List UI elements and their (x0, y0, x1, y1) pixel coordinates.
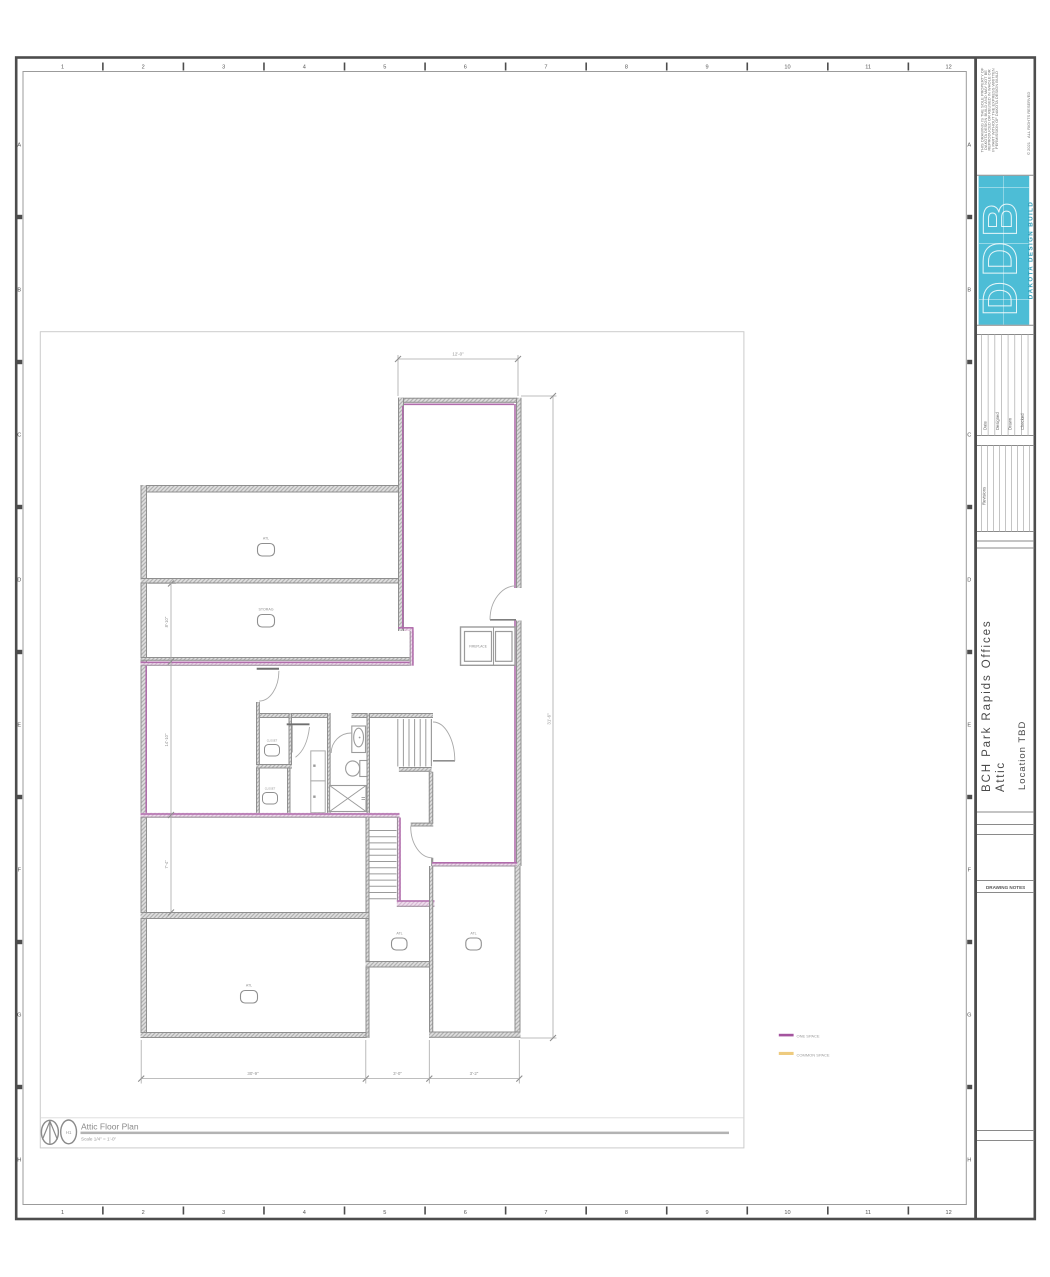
svg-text:B: B (17, 288, 21, 294)
svg-text:12: 12 (946, 1210, 952, 1216)
svg-text:1: 1 (61, 64, 64, 70)
svg-text:FIREPLACE: FIREPLACE (469, 645, 487, 649)
svg-text:2: 2 (142, 64, 145, 70)
svg-text:ATL: ATL (246, 984, 252, 988)
svg-text:© 2021: © 2021 (1026, 141, 1031, 155)
svg-text:1: 1 (61, 1210, 64, 1216)
svg-text:12'-0": 12'-0" (452, 352, 464, 357)
svg-text:31'-6": 31'-6" (547, 713, 552, 725)
svg-text:ATL: ATL (396, 932, 402, 936)
svg-text:5: 5 (383, 64, 386, 70)
svg-text:G: G (967, 1013, 971, 1019)
svg-text:H: H (967, 1158, 971, 1164)
svg-text:A: A (17, 143, 21, 149)
svg-text:F: F (968, 868, 972, 874)
svg-text:10: 10 (784, 1210, 790, 1216)
svg-text:PERMISSION OF DAKOTA DESIGN BU: PERMISSION OF DAKOTA DESIGN BUILD (994, 71, 999, 149)
svg-text:2: 2 (142, 1210, 145, 1216)
svg-text:COMMON SPACE: COMMON SPACE (797, 1052, 830, 1057)
svg-text:F: F (18, 868, 22, 874)
svg-text:7: 7 (544, 1210, 547, 1216)
svg-text:3'-2": 3'-2" (470, 1071, 479, 1076)
svg-text:Location TBD: Location TBD (1017, 721, 1028, 790)
svg-text:4: 4 (303, 1210, 306, 1216)
svg-text:11: 11 (865, 1210, 871, 1216)
svg-text:3'-0": 3'-0" (393, 1071, 402, 1076)
svg-text:14'-10": 14'-10" (164, 733, 169, 747)
svg-text:CLOSET: CLOSET (265, 787, 276, 791)
svg-text:4: 4 (303, 64, 306, 70)
svg-text:G: G (17, 1013, 21, 1019)
svg-text:Attic Floor Plan: Attic Floor Plan (81, 1122, 139, 1132)
svg-text:H: H (17, 1158, 21, 1164)
svg-text:6: 6 (464, 1210, 467, 1216)
svg-text:ATL: ATL (263, 537, 269, 541)
svg-text:E: E (17, 723, 21, 729)
svg-text:Drawn: Drawn (1007, 417, 1012, 430)
svg-text:7'-4": 7'-4" (164, 860, 169, 869)
svg-text:ONE SPACE: ONE SPACE (797, 1033, 820, 1038)
svg-text:11: 11 (865, 64, 871, 70)
svg-text:8: 8 (625, 64, 628, 70)
svg-text:C: C (17, 433, 21, 439)
svg-text:Date: Date (982, 420, 987, 430)
svg-text:3: 3 (222, 1210, 225, 1216)
svg-text:CLOSET: CLOSET (267, 739, 278, 743)
svg-text:9: 9 (705, 1210, 708, 1216)
svg-text:D: D (17, 578, 21, 584)
svg-text:30'-9": 30'-9" (247, 1071, 259, 1076)
svg-text:DRAWING NOTES: DRAWING NOTES (986, 885, 1025, 890)
svg-text:ALL RIGHTS RESERVED: ALL RIGHTS RESERVED (1026, 92, 1031, 138)
svg-text:ATL: ATL (470, 932, 476, 936)
svg-text:12: 12 (946, 64, 952, 70)
svg-text:H1: H1 (66, 1130, 72, 1135)
svg-text:C: C (967, 433, 971, 439)
svg-text:8'-10": 8'-10" (164, 616, 169, 627)
svg-text:9: 9 (705, 64, 708, 70)
svg-text:3: 3 (222, 64, 225, 70)
svg-text:Revisions: Revisions (981, 487, 986, 505)
svg-text:E: E (967, 723, 971, 729)
svg-text:DAKOTA DESIGN BUILD: DAKOTA DESIGN BUILD (1028, 201, 1035, 299)
svg-text:DDB: DDB (975, 197, 1028, 316)
svg-text:5: 5 (383, 1210, 386, 1216)
svg-text:Checked: Checked (1020, 413, 1025, 430)
svg-text:Scale 1/4" = 1'-0": Scale 1/4" = 1'-0" (81, 1136, 117, 1141)
svg-text:6: 6 (464, 64, 467, 70)
svg-text:A: A (967, 143, 971, 149)
svg-text:BCH Park Rapids Offices: BCH Park Rapids Offices (981, 619, 993, 792)
svg-text:Attic: Attic (995, 761, 1007, 792)
svg-text:B: B (967, 288, 971, 294)
svg-text:D: D (967, 578, 971, 584)
svg-text:8: 8 (625, 1210, 628, 1216)
svg-text:7: 7 (544, 64, 547, 70)
svg-text:STORAG: STORAG (258, 608, 273, 612)
svg-text:10: 10 (784, 64, 790, 70)
svg-text:Designed: Designed (995, 412, 1000, 430)
